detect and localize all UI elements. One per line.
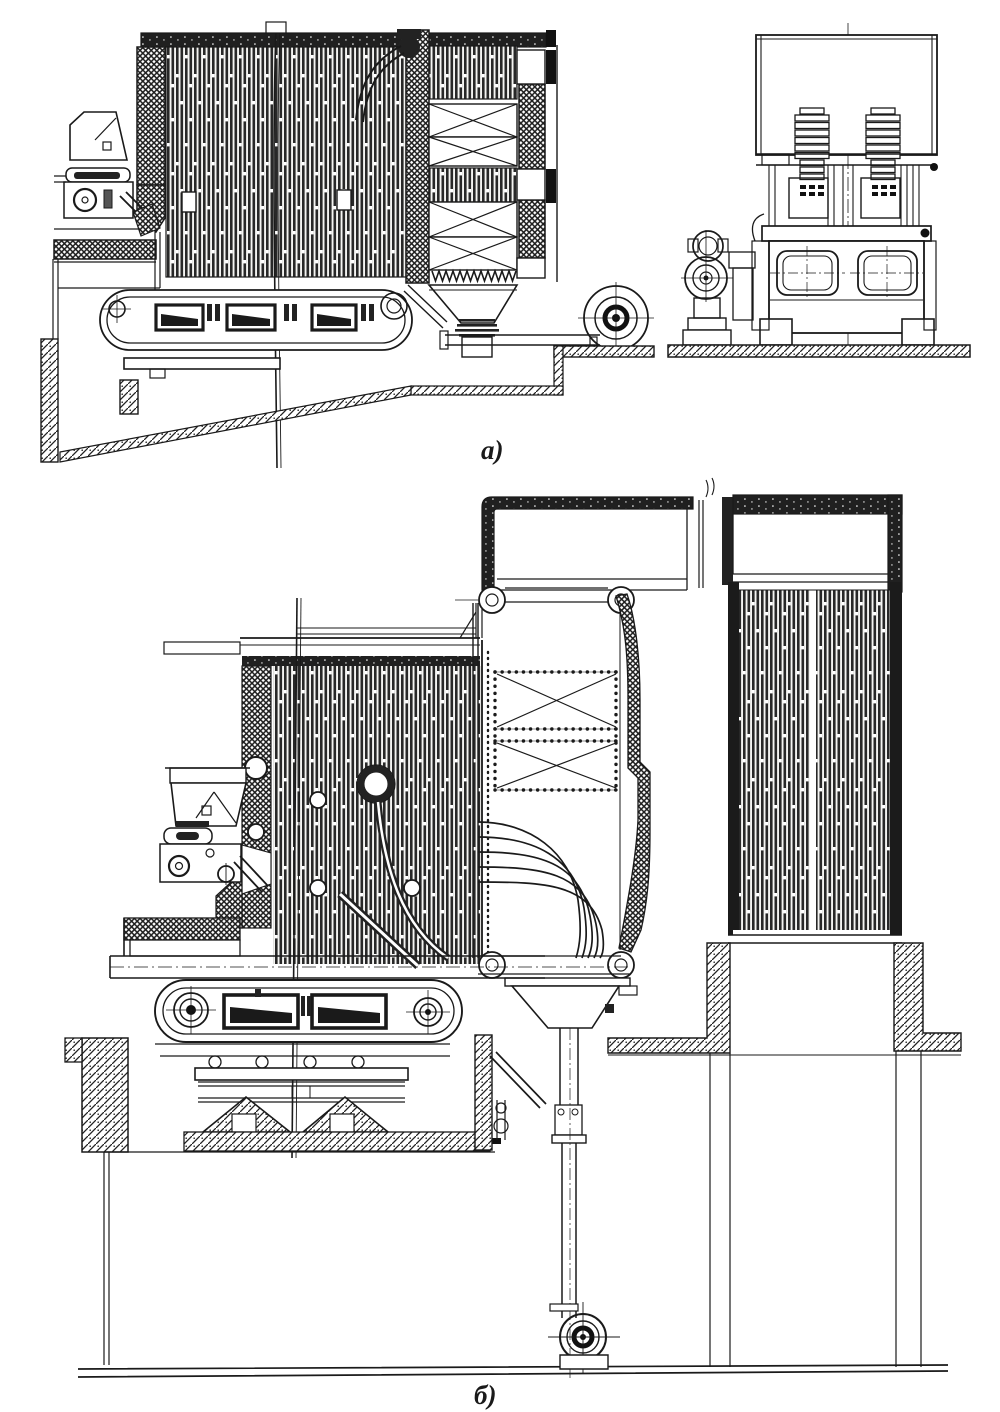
svg-text:б): б) bbox=[474, 1380, 496, 1410]
svg-text:а): а) bbox=[481, 435, 504, 465]
